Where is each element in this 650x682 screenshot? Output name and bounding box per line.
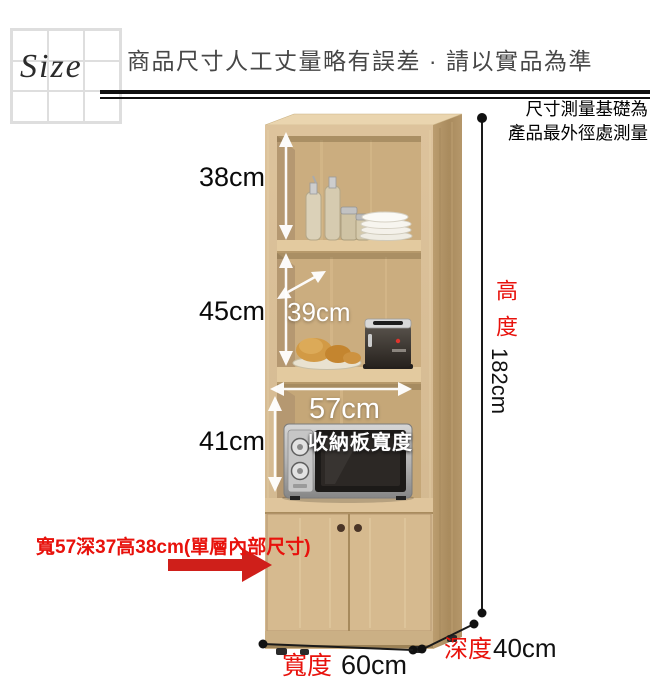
label-board-width-caption: 收納板寬度 <box>308 426 413 455</box>
plates-illustration <box>360 212 412 241</box>
label-depth-zh: 深度 <box>444 629 492 664</box>
measurement-basis-note: 尺寸測量基礎為 產品最外徑處測量 <box>495 97 648 145</box>
label-height-value: 182cm <box>486 348 512 414</box>
cabinet-top-face <box>265 114 462 125</box>
toaster-illustration <box>363 319 413 369</box>
label-width-group: 寬度 60cm <box>282 646 407 682</box>
label-width-value: 60cm <box>341 650 407 681</box>
label-board-width: 57cm <box>309 393 380 426</box>
label-shelf1-height: 38cm <box>199 162 265 193</box>
size-logo-text: Size <box>20 48 83 86</box>
page-title: 商品尺寸人工丈量略有誤差 · 請以實品為準 <box>127 42 593 76</box>
label-height-zh: 高度 <box>489 279 521 351</box>
cabinet-side-panel <box>433 114 462 649</box>
product-size-diagram: Size 商品尺寸人工丈量略有誤差 · 請以實品為準 尺寸測量基礎為 產品最外徑… <box>0 0 650 682</box>
measurement-basis-line1: 尺寸測量基礎為 <box>495 97 648 121</box>
label-shelf2-depth: 39cm <box>287 297 351 328</box>
label-inner-dimensions-note: 寬57深37高38cm(單層內部尺寸) <box>36 532 311 559</box>
measurement-basis-line2: 產品最外徑處測量 <box>495 121 648 145</box>
label-width-zh: 寬度 <box>282 646 332 682</box>
label-depth-value: 40cm <box>493 633 557 664</box>
label-depth-group: 深度 40cm <box>444 629 557 664</box>
label-shelf2-height: 45cm <box>199 296 265 327</box>
label-shelf3-height: 41cm <box>199 426 265 457</box>
